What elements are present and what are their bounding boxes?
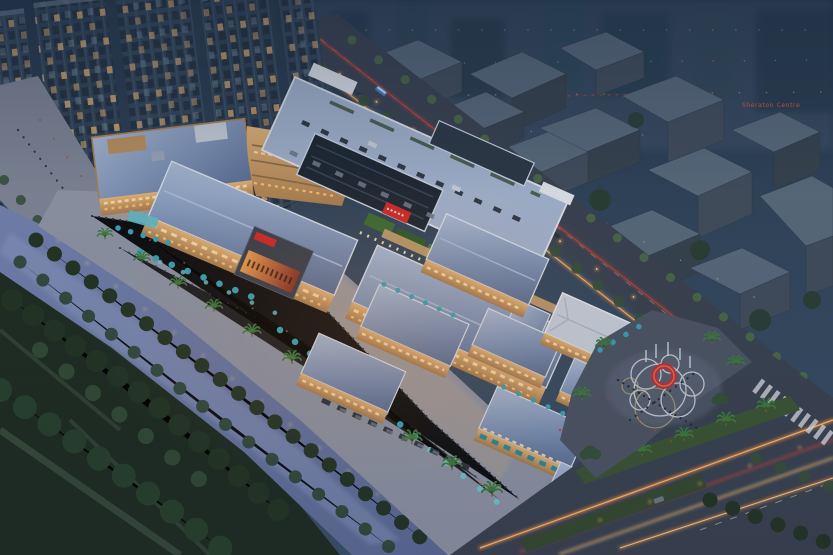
rendering-canvas: Sheraton Centre — [0, 0, 833, 555]
dusk-atmosphere-overlay — [0, 0, 833, 555]
aerial-rendering: Sheraton Centre — [0, 0, 833, 555]
